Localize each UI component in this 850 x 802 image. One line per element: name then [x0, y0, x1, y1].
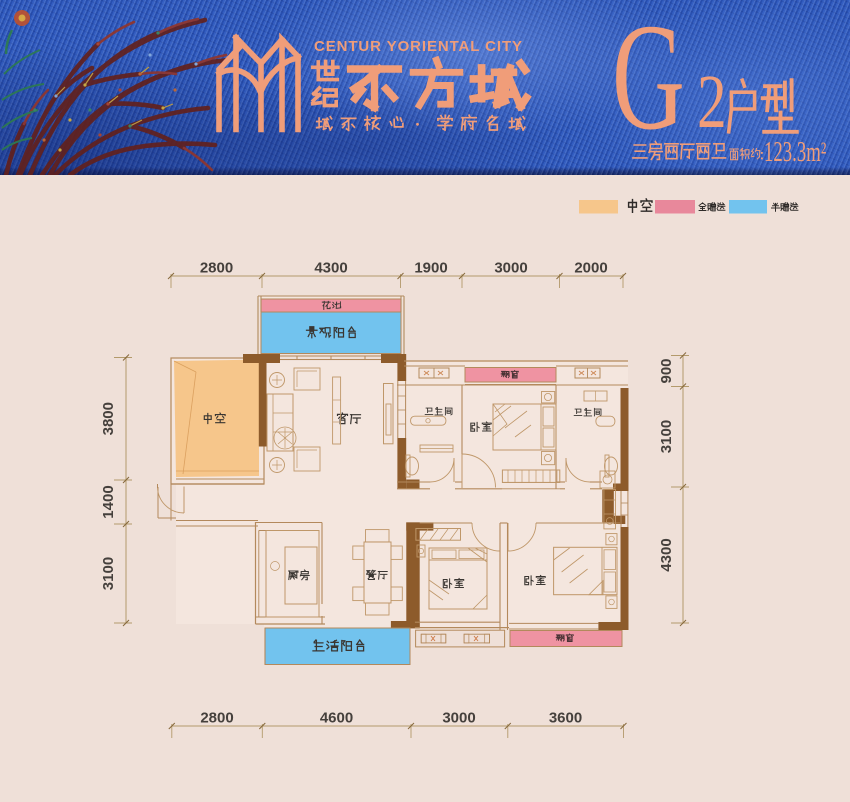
svg-text:3000: 3000 [442, 710, 475, 727]
svg-text:4300: 4300 [658, 538, 675, 571]
svg-text:3800: 3800 [100, 402, 117, 435]
svg-text:2000: 2000 [574, 260, 607, 277]
svg-text:3000: 3000 [494, 260, 527, 277]
svg-text:3100: 3100 [100, 557, 117, 590]
svg-text:900: 900 [658, 358, 675, 383]
svg-text:3600: 3600 [549, 710, 582, 727]
svg-text:1400: 1400 [100, 485, 117, 518]
svg-text:3100: 3100 [658, 420, 675, 453]
svg-text:2800: 2800 [200, 710, 233, 727]
svg-text:2800: 2800 [200, 260, 233, 277]
svg-text:4300: 4300 [314, 260, 347, 277]
svg-text:1900: 1900 [414, 260, 447, 277]
svg-text:4600: 4600 [320, 710, 353, 727]
